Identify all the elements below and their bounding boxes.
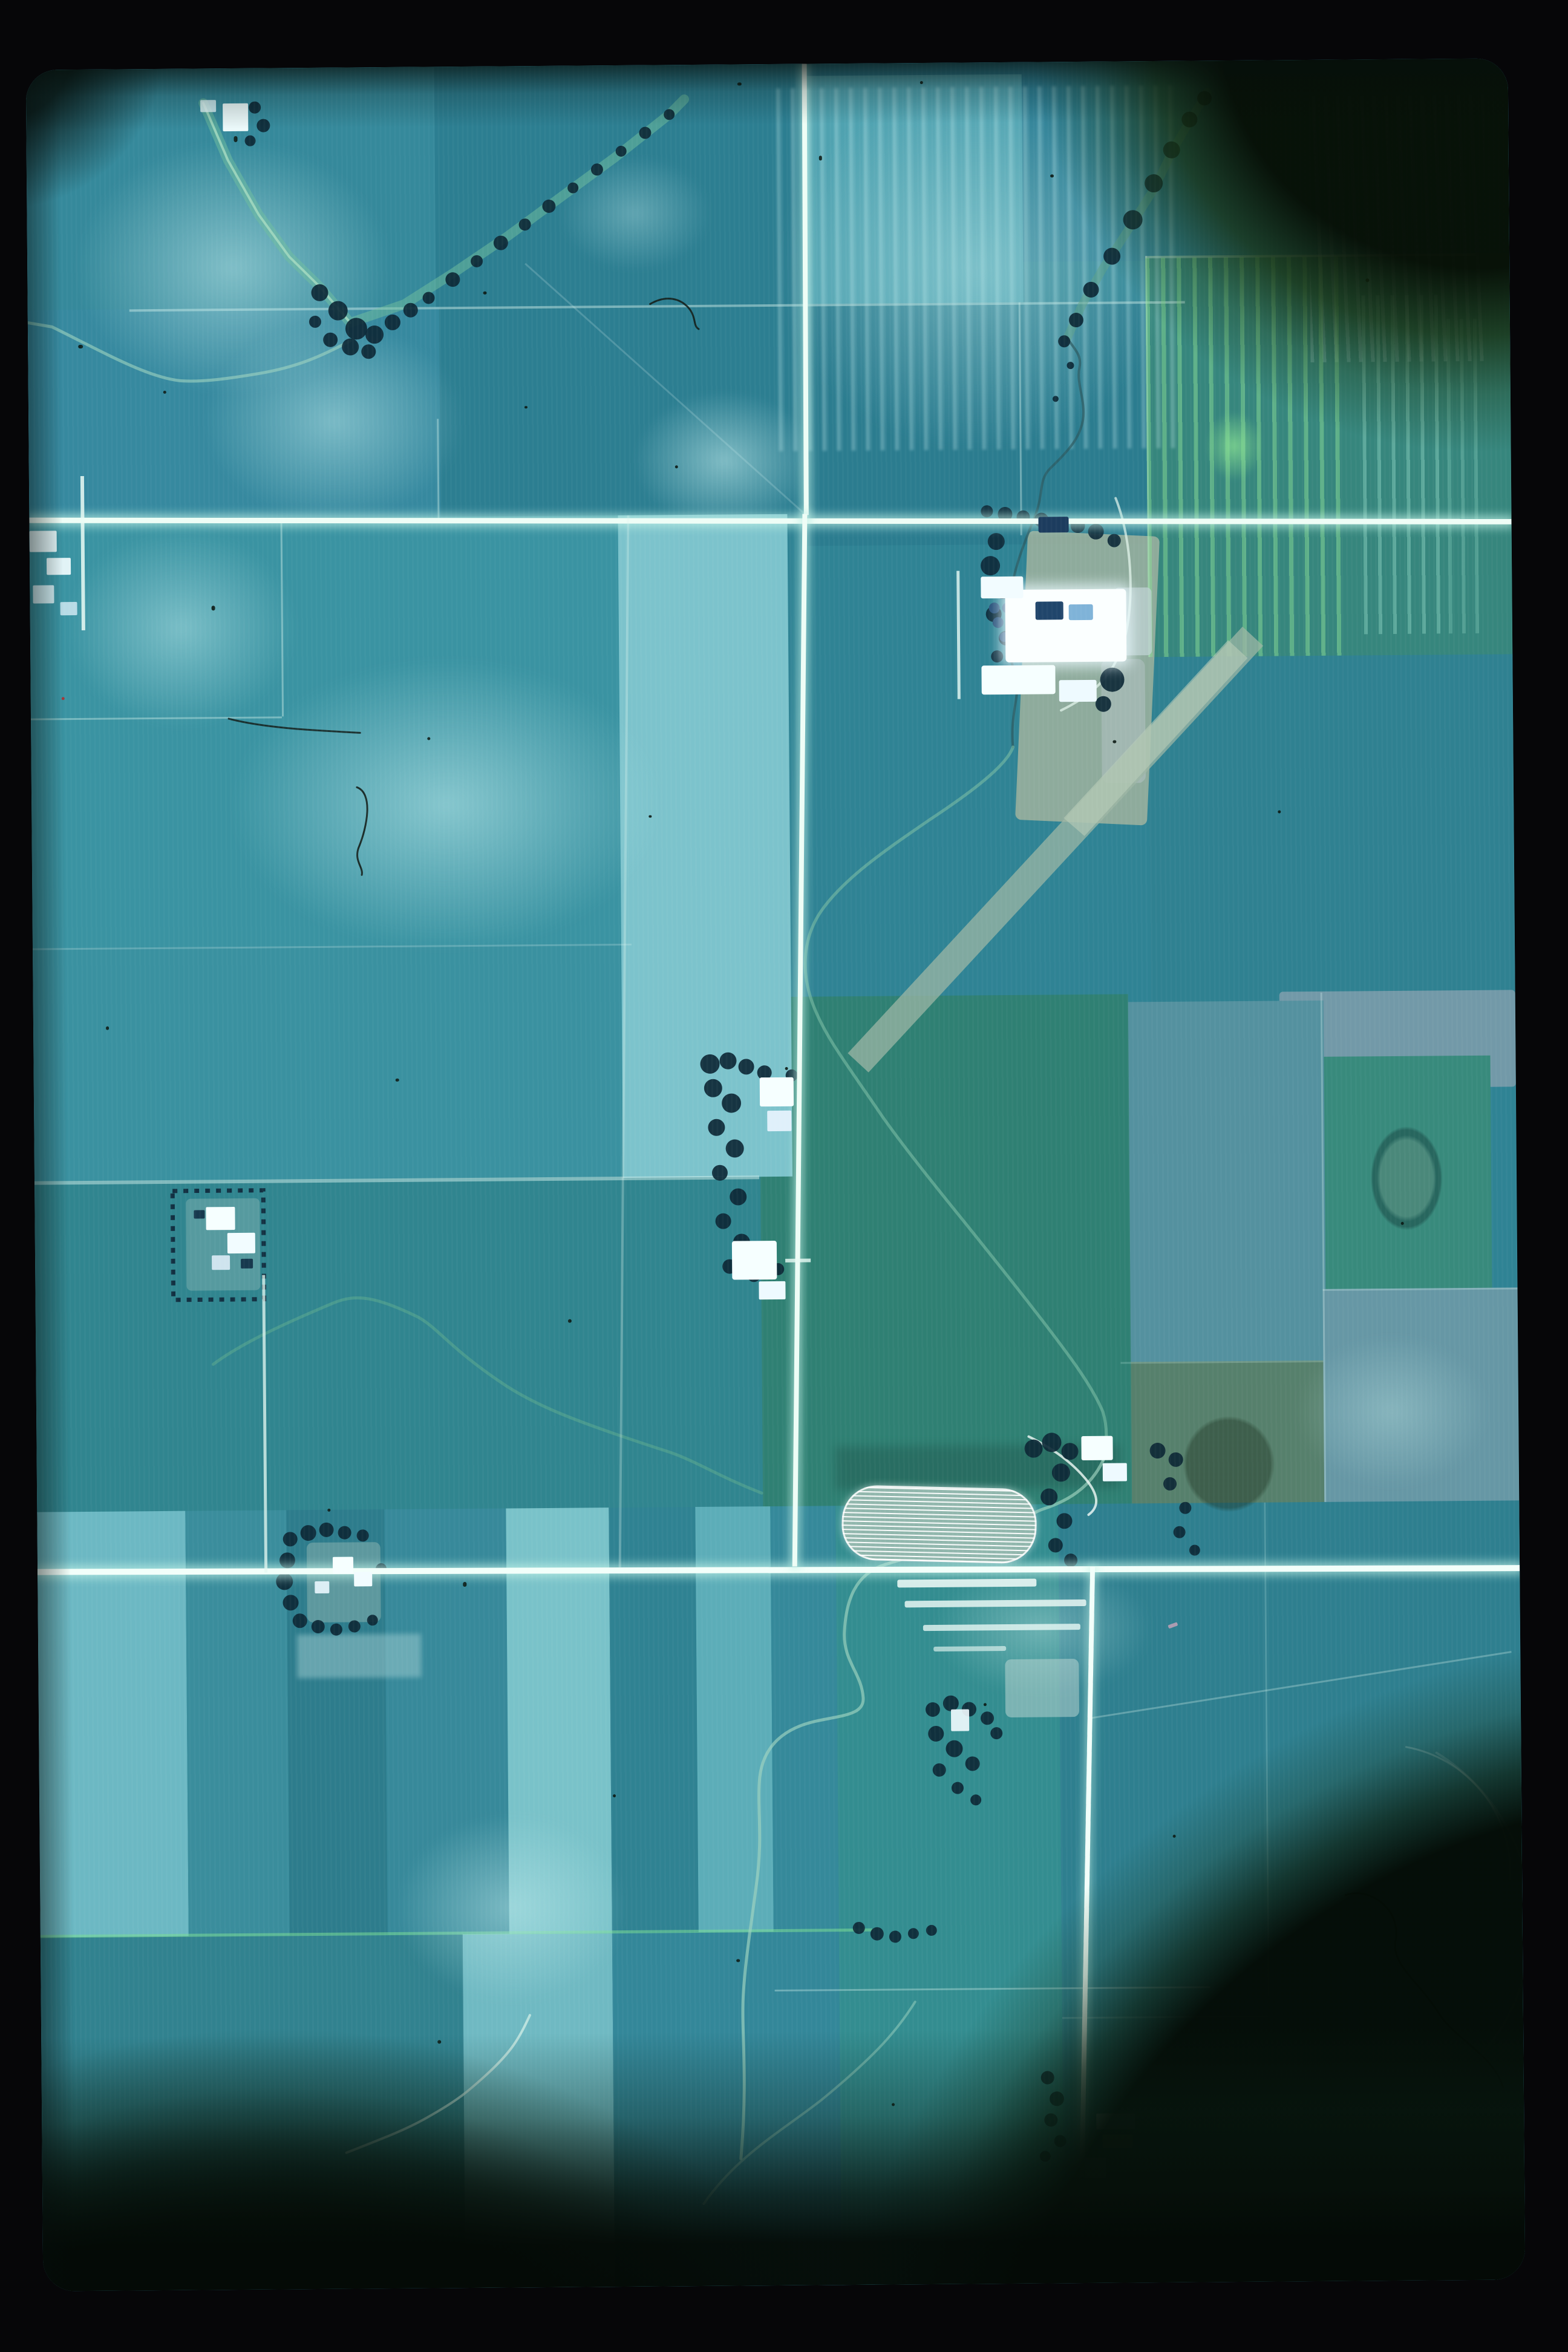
vignette-left-edge — [26, 58, 1526, 2291]
slide-mount-frame — [0, 0, 1568, 2352]
aerial-photo — [26, 58, 1526, 2291]
